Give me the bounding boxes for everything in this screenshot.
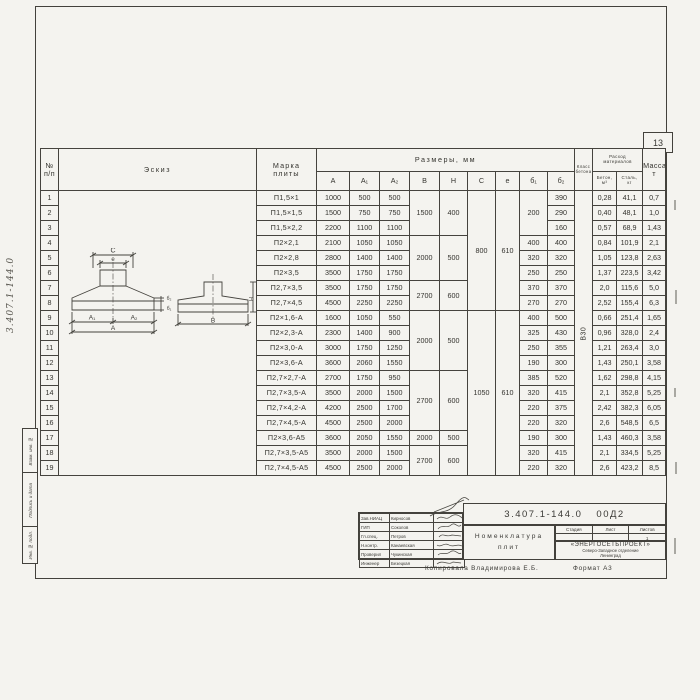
- cell-h: 500: [440, 431, 468, 446]
- cell-a2: 1500: [380, 446, 410, 461]
- signature-scribble: [434, 550, 465, 559]
- scan-artifact: [674, 538, 676, 554]
- cell-steel: 101,9: [617, 236, 643, 251]
- cell-concrete: 1,21: [593, 341, 617, 356]
- cell-b1: 220: [520, 416, 548, 431]
- margin-box-label: Взам. инв. №: [28, 437, 33, 465]
- scan-artifact: [674, 200, 676, 210]
- cell-concrete: 2,0: [593, 281, 617, 296]
- signer-row: Н.контр.Канаевская: [360, 541, 465, 550]
- cell-a1: 2050: [350, 431, 380, 446]
- doc-number-box: 3.407.1-144.0 00Д2: [463, 503, 666, 525]
- cell-a1: 1750: [350, 371, 380, 386]
- cell-a: 2100: [317, 236, 350, 251]
- cell-a: 3500: [317, 386, 350, 401]
- cell-a: 1600: [317, 311, 350, 326]
- cell-b1: 400: [520, 311, 548, 326]
- cell-steel: 328,0: [617, 326, 643, 341]
- row-number: 16: [41, 416, 59, 431]
- scan-artifact: [675, 290, 677, 304]
- cell-a: 1500: [317, 206, 350, 221]
- header-klass2: бетона: [575, 170, 592, 174]
- cell-concrete: 2,1: [593, 446, 617, 461]
- cell-a1: 2060: [350, 356, 380, 371]
- row-number: 4: [41, 236, 59, 251]
- col-header-b1: б₁: [520, 172, 548, 191]
- row-number: 5: [41, 251, 59, 266]
- cell-a2: 1250: [380, 341, 410, 356]
- dim-label-b: В: [210, 318, 214, 325]
- mark-cell: П2,7×4,5: [257, 296, 317, 311]
- cell-steel: 263,4: [617, 341, 643, 356]
- cell-b2: 300: [548, 431, 575, 446]
- mark-cell: П2×3,6-А5: [257, 431, 317, 446]
- cell-steel: 298,8: [617, 371, 643, 386]
- cell-mass: 1,43: [643, 221, 666, 236]
- cell-h: 400: [440, 191, 468, 236]
- cell-b1: 325: [520, 326, 548, 341]
- margin-box-podpis-data: Подпись и дата: [22, 472, 38, 528]
- cell-b1: 320: [520, 446, 548, 461]
- signer-row: Гл.спец.Петров: [360, 532, 465, 541]
- mark-cell: П2×2,1: [257, 236, 317, 251]
- cell-mass: 2,1: [643, 236, 666, 251]
- cell-mass: 3,42: [643, 266, 666, 281]
- row-number: 6: [41, 266, 59, 281]
- col-header-a2: А₂: [380, 172, 410, 191]
- mark-cell: П2×2,3-А: [257, 326, 317, 341]
- cell-b2: 390: [548, 191, 575, 206]
- header-stal2: кг: [617, 181, 642, 186]
- cell-mass: 3,58: [643, 356, 666, 371]
- cell-concrete: 2,42: [593, 401, 617, 416]
- cell-b1: 190: [520, 431, 548, 446]
- cell-b2: 320: [548, 416, 575, 431]
- cell-b1: 250: [520, 341, 548, 356]
- dim-label-b2-small: б₂: [166, 296, 171, 302]
- cell-concrete: 1,62: [593, 371, 617, 386]
- cell-a2: 750: [380, 206, 410, 221]
- row-number: 8: [41, 296, 59, 311]
- format-note: Формат А3: [573, 565, 613, 572]
- cell-mass: 3,58: [643, 431, 666, 446]
- cell-a1: 1050: [350, 236, 380, 251]
- cell-mass: 1,0: [643, 206, 666, 221]
- cell-steel: 250,1: [617, 356, 643, 371]
- stage-label: Стадия: [556, 526, 593, 534]
- dim-label-e: е: [111, 257, 115, 263]
- cell-a2: 1700: [380, 401, 410, 416]
- col-header-concrete: Бетон,м³: [593, 172, 617, 191]
- row-number: 19: [41, 461, 59, 476]
- cell-a1: 750: [350, 206, 380, 221]
- cell-concrete: 2,6: [593, 461, 617, 476]
- cell-mass: 2,63: [643, 251, 666, 266]
- cell-a2: 950: [380, 371, 410, 386]
- cell-a2: 1400: [380, 251, 410, 266]
- margin-box-label: Инв. № подл.: [28, 531, 33, 560]
- col-header-e: е: [496, 172, 520, 191]
- cell-a1: 2000: [350, 446, 380, 461]
- cell-a1: 1400: [350, 251, 380, 266]
- cell-a1: 1400: [350, 326, 380, 341]
- cell-a2: 900: [380, 326, 410, 341]
- cell-h: 600: [440, 446, 468, 476]
- cell-b2: 290: [548, 206, 575, 221]
- cell-a1: 2250: [350, 296, 380, 311]
- cell-h: 500: [440, 236, 468, 281]
- cell-a2: 1550: [380, 356, 410, 371]
- cell-b2: 160: [548, 221, 575, 236]
- cell-b2: 375: [548, 401, 575, 416]
- nomenclature-table: №п/п Эскиз Маркаплиты Размеры, мм Классб…: [40, 148, 666, 476]
- cell-a1: 1750: [350, 341, 380, 356]
- sheets-label: Листов: [629, 526, 665, 534]
- cell-b2: 320: [548, 251, 575, 266]
- cell-steel: 115,6: [617, 281, 643, 296]
- cell-a1: 1050: [350, 311, 380, 326]
- cell-a2: 550: [380, 311, 410, 326]
- cell-c: 1050: [468, 311, 496, 476]
- cell-concrete: 0,40: [593, 206, 617, 221]
- signer-row: ПроверилЧукинская: [360, 550, 465, 559]
- cell-steel: 382,3: [617, 401, 643, 416]
- header-rashod2: материалов: [593, 160, 642, 165]
- cell-concrete: 1,43: [593, 431, 617, 446]
- row-number: 11: [41, 341, 59, 356]
- col-header-a1: А₁: [350, 172, 380, 191]
- cell-a2: 2000: [380, 416, 410, 431]
- cell-b1: 320: [520, 386, 548, 401]
- margin-box-inv-podl: Инв. № подл.: [22, 526, 38, 564]
- drawing-title-line2: плит: [498, 543, 520, 554]
- cell-a: 3500: [317, 281, 350, 296]
- dim-label-b1-small: б₁: [166, 306, 171, 312]
- col-header-number: №п/п: [41, 149, 59, 191]
- cell-mass: 0,7: [643, 191, 666, 206]
- row-number: 1: [41, 191, 59, 206]
- doc-number: 3.407.1-144.0: [504, 509, 582, 520]
- signature-scribble: [434, 532, 465, 541]
- cell-b1: 385: [520, 371, 548, 386]
- cell-concrete: 2,6: [593, 416, 617, 431]
- col-header-dimensions: Размеры, мм: [317, 149, 575, 172]
- cell-a: 2300: [317, 326, 350, 341]
- organization-box: «ЭНЕРГОСЕТЬПРОЕКТ» Северо-Западное отдел…: [555, 541, 666, 560]
- cell-steel: 352,8: [617, 386, 643, 401]
- col-header-mass: Масса,т: [643, 149, 666, 191]
- cell-b2: 320: [548, 461, 575, 476]
- cell-concrete: 0,84: [593, 236, 617, 251]
- cell-a2: 500: [380, 191, 410, 206]
- header-beton2: м³: [593, 181, 616, 186]
- cell-a1: 1750: [350, 281, 380, 296]
- cell-a: 3500: [317, 446, 350, 461]
- signature-scribble: [434, 541, 465, 550]
- cell-steel: 460,3: [617, 431, 643, 446]
- cell-steel: 223,5: [617, 266, 643, 281]
- header-massa2: т: [643, 170, 665, 178]
- row-number: 2: [41, 206, 59, 221]
- signer-role: ГИП: [360, 523, 390, 532]
- cell-a1: 1100: [350, 221, 380, 236]
- signer-row: ГИПСоколов: [360, 523, 465, 532]
- col-header-sketch: Эскиз: [59, 149, 257, 191]
- cell-mass: 6,05: [643, 401, 666, 416]
- cell-b1: 190: [520, 356, 548, 371]
- cell-a: 3500: [317, 266, 350, 281]
- cell-a: 2200: [317, 221, 350, 236]
- cell-a1: 2500: [350, 401, 380, 416]
- stage-sheet-strip: Стадия Лист Листов 1: [555, 525, 666, 541]
- cell-a1: 2500: [350, 461, 380, 476]
- cell-a: 1000: [317, 191, 350, 206]
- col-header-a: А: [317, 172, 350, 191]
- scan-artifact: [675, 462, 677, 474]
- mark-cell: П2×2,8: [257, 251, 317, 266]
- cell-a1: 2000: [350, 386, 380, 401]
- cell-mass: 6,3: [643, 296, 666, 311]
- cell-b: 2700: [410, 371, 440, 431]
- signer-role: Проверил: [360, 550, 390, 559]
- cell-a2: 1050: [380, 236, 410, 251]
- margin-doc-number: 3.407.1-144.0: [2, 240, 20, 350]
- mark-cell: П2,7×3,5-А5: [257, 446, 317, 461]
- cell-h: 500: [440, 311, 468, 371]
- mark-cell: П1,5×1,5: [257, 206, 317, 221]
- cell-steel: 123,8: [617, 251, 643, 266]
- cell-b2: 270: [548, 296, 575, 311]
- signer-name: Кирносов: [390, 514, 434, 523]
- margin-box-label: Подпись и дата: [28, 483, 33, 518]
- cell-a: 4500: [317, 296, 350, 311]
- row-number: 18: [41, 446, 59, 461]
- cell-steel: 548,5: [617, 416, 643, 431]
- cell-b: 2000: [410, 236, 440, 281]
- cell-steel: 334,5: [617, 446, 643, 461]
- cell-b1: 320: [520, 251, 548, 266]
- col-header-mark: Маркаплиты: [257, 149, 317, 191]
- cell-a2: 1750: [380, 266, 410, 281]
- row-number: 15: [41, 401, 59, 416]
- mark-cell: П1,5×1: [257, 191, 317, 206]
- sheet-number: 13: [653, 138, 663, 148]
- drawing-title-line1: Номенклатура: [475, 532, 543, 543]
- cell-a: 2800: [317, 251, 350, 266]
- signature-scribble: [434, 523, 465, 532]
- mark-cell: П2×3,5: [257, 266, 317, 281]
- cell-concrete: 0,66: [593, 311, 617, 326]
- copied-by-note: Копировала Владимирова Е.Б.: [425, 565, 539, 572]
- cell-h: 600: [440, 371, 468, 431]
- mark-cell: П2,7×4,5-А5: [257, 461, 317, 476]
- mark-cell: П1,5×2,2: [257, 221, 317, 236]
- cell-b1: 220: [520, 401, 548, 416]
- cell-b1: 370: [520, 281, 548, 296]
- concrete-class-value: В30: [580, 327, 587, 341]
- signer-name: Петров: [390, 532, 434, 541]
- margin-box-vzam-inv: Взам. инв. №: [22, 428, 38, 474]
- org-city: Ленинград: [600, 554, 621, 559]
- cell-b: 2700: [410, 281, 440, 311]
- cell-a: 3600: [317, 431, 350, 446]
- table-row: 1: [41, 191, 666, 206]
- cell-steel: 423,2: [617, 461, 643, 476]
- dim-label-c: С: [110, 248, 115, 255]
- cell-b1: 250: [520, 266, 548, 281]
- cell-b2: 415: [548, 446, 575, 461]
- cell-b1: 400: [520, 236, 548, 251]
- concrete-class-cell: В30: [575, 191, 593, 476]
- cell-steel: 68,9: [617, 221, 643, 236]
- cell-b1: 270: [520, 296, 548, 311]
- row-number: 3: [41, 221, 59, 236]
- dim-label-a2: А₂: [130, 315, 137, 322]
- mark-cell: П2,7×3,5-А: [257, 386, 317, 401]
- cell-steel: 41,1: [617, 191, 643, 206]
- col-header-b2: б₂: [548, 172, 575, 191]
- col-header-concrete-class: Классбетона: [575, 149, 593, 191]
- signer-role: Гл.спец.: [360, 532, 390, 541]
- row-number: 7: [41, 281, 59, 296]
- cell-b: 2000: [410, 311, 440, 371]
- header-n2: п/п: [41, 170, 58, 178]
- cell-a: 3000: [317, 341, 350, 356]
- row-number: 10: [41, 326, 59, 341]
- cell-b1: 220: [520, 461, 548, 476]
- signer-role: Н.контр.: [360, 541, 390, 550]
- cell-mass: 1,65: [643, 311, 666, 326]
- cell-b: 2000: [410, 431, 440, 446]
- cell-a: 4200: [317, 401, 350, 416]
- cell-b2: 355: [548, 341, 575, 356]
- mark-cell: П2,7×3,5: [257, 281, 317, 296]
- cell-a: 4500: [317, 416, 350, 431]
- cell-steel: 48,1: [617, 206, 643, 221]
- row-number: 17: [41, 431, 59, 446]
- cell-b2: 520: [548, 371, 575, 386]
- mark-cell: П2,7×4,5-А: [257, 416, 317, 431]
- mark-cell: П2×3,6-А: [257, 356, 317, 371]
- cell-mass: 5,0: [643, 281, 666, 296]
- mark-cell: П2,7×2,7-А: [257, 371, 317, 386]
- signer-role: Зав.НИАЦ: [360, 514, 390, 523]
- sketch-cell: С е б₂ б₁ А₁ А₂ А В Н: [59, 191, 257, 476]
- mark-cell: П2×1,6-А: [257, 311, 317, 326]
- cell-a2: 1550: [380, 431, 410, 446]
- cell-a2: 1500: [380, 386, 410, 401]
- cell-b2: 300: [548, 356, 575, 371]
- cell-concrete: 0,57: [593, 221, 617, 236]
- row-number: 9: [41, 311, 59, 326]
- col-header-h: Н: [440, 172, 468, 191]
- table-header-row-1: №п/п Эскиз Маркаплиты Размеры, мм Классб…: [41, 149, 666, 172]
- cell-h: 600: [440, 281, 468, 311]
- cell-a: 2700: [317, 371, 350, 386]
- mark-cell: П2×3,0-А: [257, 341, 317, 356]
- header-marka2: плиты: [257, 170, 316, 178]
- col-header-b: В: [410, 172, 440, 191]
- slab-section-sketch: С е б₂ б₁ А₁ А₂ А В Н: [60, 248, 256, 378]
- row-number: 14: [41, 386, 59, 401]
- dim-label-a: А: [110, 325, 115, 332]
- cell-a2: 1750: [380, 281, 410, 296]
- cell-a2: 2000: [380, 461, 410, 476]
- drawing-title-box: Номенклатура плит: [463, 525, 555, 560]
- cell-b2: 500: [548, 311, 575, 326]
- cell-mass: 4,15: [643, 371, 666, 386]
- cell-mass: 6,5: [643, 416, 666, 431]
- cell-b: 2700: [410, 446, 440, 476]
- doc-code: 00Д2: [596, 509, 624, 520]
- row-number: 13: [41, 371, 59, 386]
- signature-table: Зав.НИАЦКирносов ГИПСоколов Гл.спец.Петр…: [358, 512, 463, 560]
- cell-b2: 430: [548, 326, 575, 341]
- row-number: 12: [41, 356, 59, 371]
- cell-b2: 370: [548, 281, 575, 296]
- cell-a1: 2500: [350, 416, 380, 431]
- cell-a1: 1750: [350, 266, 380, 281]
- cell-a: 4500: [317, 461, 350, 476]
- signer-name: Чукинская: [390, 550, 434, 559]
- cell-concrete: 2,52: [593, 296, 617, 311]
- signer-name: Соколов: [390, 523, 434, 532]
- cell-a: 3600: [317, 356, 350, 371]
- cell-mass: 2,4: [643, 326, 666, 341]
- cell-concrete: 1,05: [593, 251, 617, 266]
- cell-c: 800: [468, 191, 496, 311]
- cell-concrete: 1,37: [593, 266, 617, 281]
- cell-concrete: 1,43: [593, 356, 617, 371]
- cell-b2: 400: [548, 236, 575, 251]
- dim-label-a1: А₁: [88, 315, 95, 322]
- cell-concrete: 0,28: [593, 191, 617, 206]
- col-header-steel: Сталь,кг: [617, 172, 643, 191]
- signer-role: Инженер: [360, 559, 390, 568]
- signer-name: Канаевская: [390, 541, 434, 550]
- dim-label-h: Н: [249, 297, 255, 301]
- cell-e: 610: [496, 311, 520, 476]
- cell-mass: 8,5: [643, 461, 666, 476]
- cell-mass: 3,0: [643, 341, 666, 356]
- cell-concrete: 0,96: [593, 326, 617, 341]
- scan-artifact: [674, 388, 676, 397]
- cell-a2: 1100: [380, 221, 410, 236]
- cell-steel: 155,4: [617, 296, 643, 311]
- cell-b2: 415: [548, 386, 575, 401]
- cell-e: 610: [496, 191, 520, 311]
- cell-a2: 2250: [380, 296, 410, 311]
- cell-a1: 500: [350, 191, 380, 206]
- cell-b1: 200: [520, 191, 548, 236]
- col-header-materials: Расходматериалов: [593, 149, 643, 172]
- col-header-c: С: [468, 172, 496, 191]
- cell-mass: 5,25: [643, 386, 666, 401]
- cell-b: 1500: [410, 191, 440, 236]
- cell-mass: 5,25: [643, 446, 666, 461]
- cell-concrete: 2,1: [593, 386, 617, 401]
- sheet-label: Лист: [593, 526, 630, 534]
- cell-steel: 251,4: [617, 311, 643, 326]
- mark-cell: П2,7×4,2-А: [257, 401, 317, 416]
- cell-b2: 250: [548, 266, 575, 281]
